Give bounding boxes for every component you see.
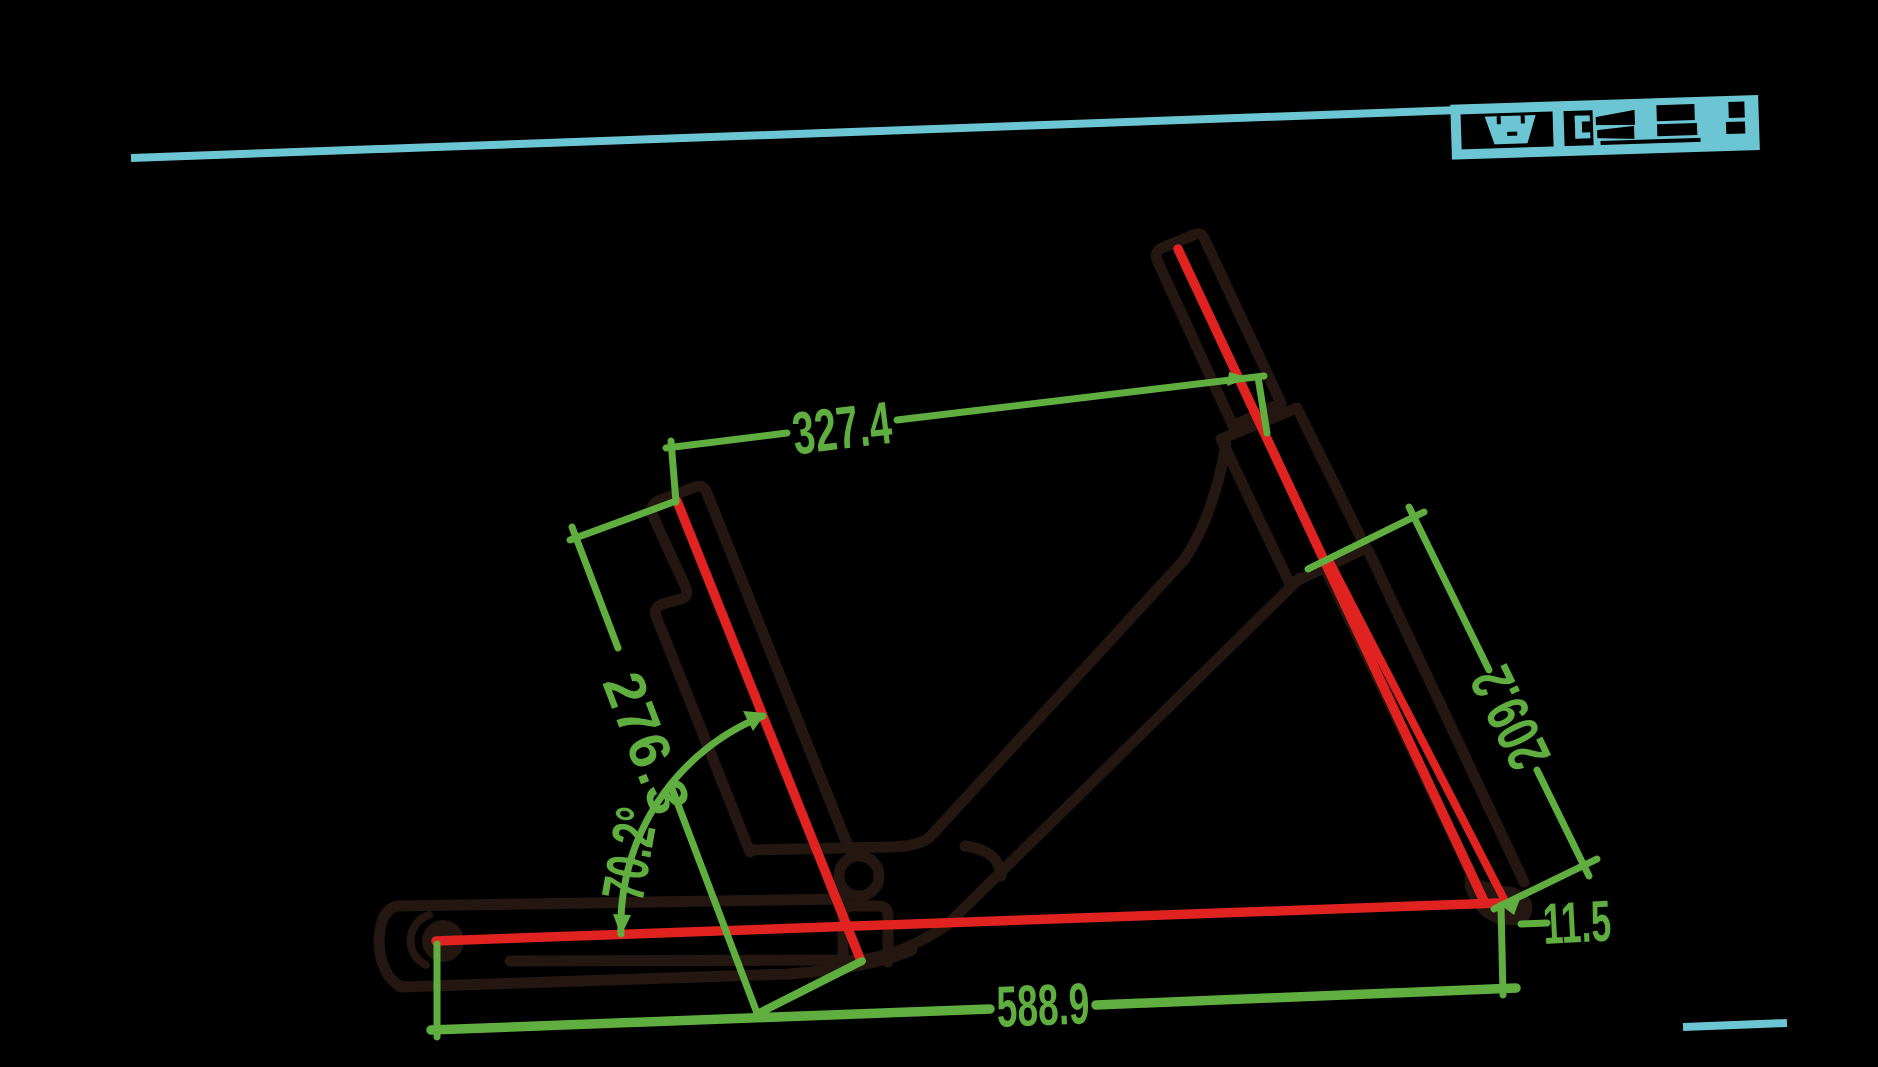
- svg-text:588.9: 588.9: [995, 972, 1090, 1040]
- svg-text:11.5: 11.5: [1541, 889, 1612, 957]
- svg-text:327.4: 327.4: [789, 389, 895, 468]
